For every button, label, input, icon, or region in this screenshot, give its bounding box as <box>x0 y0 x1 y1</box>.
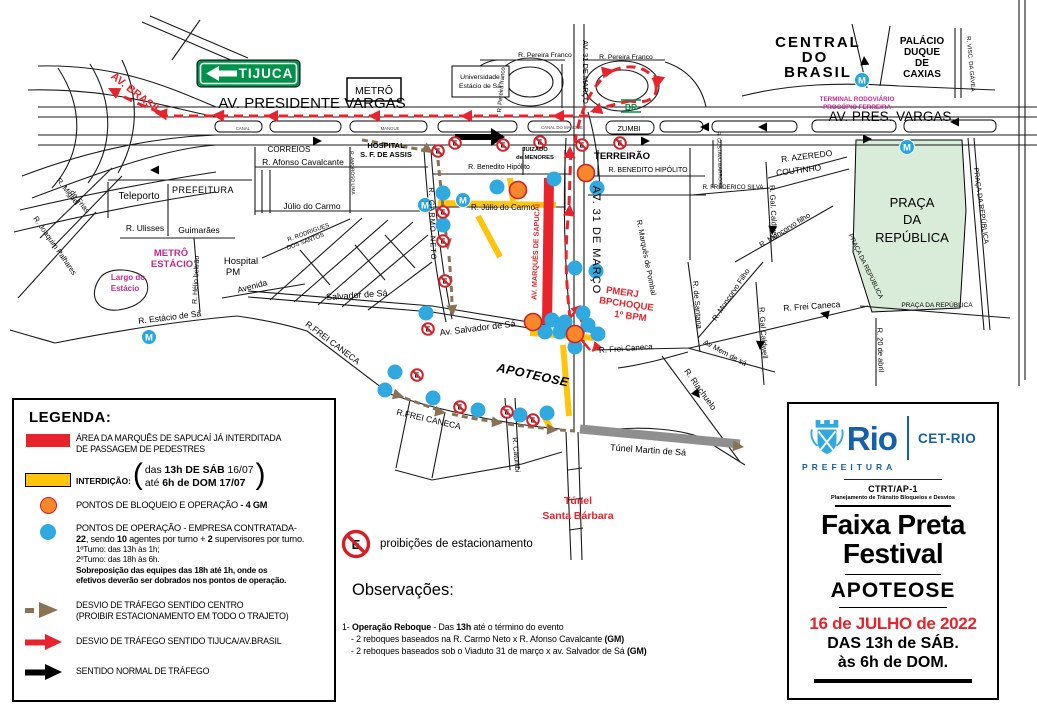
arrowhead <box>313 137 322 146</box>
red-area-swatch <box>26 434 70 447</box>
map-label-av-31-marco-mid: AV. 31 DE MARÇO <box>590 186 602 295</box>
panel-rule-4 <box>839 607 947 608</box>
map-label-tunel-santa-barbara-1: Túnel <box>564 495 592 507</box>
map-label-praca-1: PRAÇA <box>890 195 935 210</box>
universidade-label-1: Universidade <box>460 74 500 81</box>
no-parking-icon: E <box>501 406 513 418</box>
open-paren: ( <box>133 461 143 488</box>
panel-rule-2 <box>835 505 951 507</box>
no-parking-icon: E <box>411 369 423 381</box>
info-panel: Rio CET-RIO PREFEITURA CTRT/AP-1 Planeja… <box>787 402 999 700</box>
no-parking-icon: E <box>437 235 449 247</box>
no-parking-icon: E <box>432 145 444 157</box>
map-label-av-presidente-vargas: AV. PRESIDENTE VARGAS <box>218 95 405 112</box>
cet-rio-label: CET-RIO <box>918 431 976 446</box>
map-label-central-do-brasil-3: BRASIL <box>784 64 852 81</box>
operation-point <box>513 408 528 423</box>
map-label-palacio-4: CAXIAS <box>903 69 941 80</box>
map-label-apoteose: APOTEOSE <box>494 360 570 389</box>
map-label-gal-caldwell-2: R. Gal Caldwell <box>757 307 770 360</box>
map-label-catumbi: R. Catumbi <box>510 437 520 473</box>
map-label-pereira-franco-1: R. Pereira Franco <box>518 52 572 59</box>
operation-point <box>490 180 505 195</box>
arrowhead <box>641 137 650 146</box>
dept-sub-label: Planejamento de Trânsito Bloqueios e Des… <box>789 495 997 501</box>
metro-icon: M <box>855 73 870 88</box>
interdicao-times: das 13h DE SÁB 16/07 até 6h de DOM 17/07 <box>145 464 254 490</box>
brown-arrow-icon <box>22 601 74 619</box>
svg-text:M: M <box>145 332 153 343</box>
no-parking-icon: E <box>437 206 449 218</box>
no-parking-icon: E <box>614 137 626 149</box>
operation-point <box>426 391 441 406</box>
tijuca-sign: TIJUCA <box>197 60 300 87</box>
map-label-tunel-martin: Túnel Martin de Sá <box>610 442 687 457</box>
no-parking-icon: E <box>422 323 434 335</box>
observations-items: 1- Operação Reboque - Das 13h até o térm… <box>342 622 785 658</box>
map-label-benedito-hipolito-e: R. BENEDITO HIPÓLITO <box>608 165 688 174</box>
legend-box: LEGENDA: ÁREA DA MARQUÊS DE SAPUCAÍ JÁ I… <box>12 398 336 702</box>
legend-row-desvio-tijuca: DESVIO DE TRÁFEGO SENTIDO TIJUCA/AV.BRAS… <box>20 632 328 651</box>
map-label-praca-street-right: PRAÇA DA REPÚBLICA <box>972 167 992 244</box>
legend-row-operacao: PONTOS DE OPERAÇÃO - EMPRESA CONTRATADA-… <box>20 523 328 586</box>
event-date: 16 de JULHO de 2022 <box>789 614 997 634</box>
map-label-carmo-neto: R. CARMO NETO <box>427 187 439 261</box>
operacao-text: PONTOS DE OPERAÇÃO - EMPRESA CONTRATADA-… <box>76 523 304 586</box>
arrowhead <box>108 88 121 99</box>
no-parking-icon: E <box>576 139 588 151</box>
interdicao-label: INTERDIÇÃO: <box>76 476 131 486</box>
event-title-1: Faixa Preta <box>789 510 997 539</box>
br-logo-label: BR <box>625 102 637 112</box>
traffic-map-page: { "map": { "signs": { "tijuca": "TIJUCA"… <box>0 0 1037 713</box>
map-label-pereira-franco-2: R. Pereira Franco <box>599 54 653 61</box>
black-arrow-icon <box>22 663 74 681</box>
map-label-largo-estacio-1: Largo do <box>111 273 145 282</box>
map-label-teleporto: Teleporto <box>118 191 160 202</box>
no-parking-icon: E <box>449 137 461 149</box>
legend-row-closed-area: ÁREA DA MARQUÊS DE SAPUCAÍ JÁ INTERDITAD… <box>20 433 328 454</box>
no-parking-icon: E <box>527 414 539 426</box>
operation-point <box>419 306 434 321</box>
metro-icon: M <box>900 140 915 155</box>
arrowhead <box>492 416 504 427</box>
universidade-label-2: Estácio de Sá <box>459 83 501 90</box>
map-label-hospital-pm-1: Hospital <box>224 256 258 267</box>
map-label-zumbi: ZUMBI <box>617 124 640 133</box>
map-label-frei-caneca-w: R.FREI CANECA <box>304 319 363 367</box>
sapucai-closed-area <box>547 178 549 324</box>
map-label-tunel-santa-barbara-2: Santa Bárbara <box>542 510 613 522</box>
svg-text:M: M <box>858 75 866 86</box>
arrowhead <box>150 166 159 175</box>
no-parking-icon: E <box>439 275 451 287</box>
arrowhead <box>820 311 830 320</box>
arrowhead <box>460 110 472 122</box>
desvio-tijuca-text: DESVIO DE TRÁFEGO SENTIDO TIJUCA/AV.BRAS… <box>76 636 281 647</box>
no-parking-icon: E <box>340 528 372 560</box>
map-label-canal-1: CANAL <box>236 126 251 131</box>
yellow-swatch <box>25 473 71 487</box>
prefeitura-label: PREFEITURA <box>802 462 997 472</box>
blockade-point <box>567 326 584 343</box>
map-label-hospital-pm-2: PM <box>226 267 240 278</box>
no-parking-label: proibições de estacionamento <box>380 538 533 550</box>
map-label-frei-caneca-pmerj: R. Frei Caneca <box>599 342 654 355</box>
arrowhead <box>552 110 564 122</box>
blockade-point <box>578 165 595 182</box>
tijuca-sign-label: TIJUCA <box>239 66 294 81</box>
event-time-2: às 6h de DOM. <box>789 653 997 672</box>
map-label-terreirao: TERREIRÃO <box>594 151 650 162</box>
venue-label: APOTEOSE <box>789 579 997 603</box>
closed-area-text: ÁREA DA MARQUÊS DE SAPUCAÍ JÁ INTERDITAD… <box>76 433 281 454</box>
blockade-point <box>510 182 527 199</box>
normal-flow-text: SENTIDO NORMAL DE TRÁFEGO <box>76 666 209 677</box>
svg-text:M: M <box>459 195 467 206</box>
panel-bottom-bar <box>814 679 972 683</box>
operation-point <box>568 261 583 276</box>
map-label-hospital-assis-1: HOSPITAL <box>367 141 405 150</box>
no-parking-icon: E <box>497 139 509 151</box>
tunel-martin-band <box>580 429 740 444</box>
map-label-metro-estacio-2: ESTÁCIO <box>151 259 193 270</box>
map-label-praca-street-bottom: PRAÇA DA REPÚBLICA <box>901 300 973 309</box>
legend-row-desvio-centro: DESVIO DE TRÁFEGO SENTIDO CENTRO(PROIBIR… <box>20 600 328 621</box>
map-label-praca-2: DA <box>903 212 921 227</box>
close-paren: ) <box>256 461 266 488</box>
map-label-largo-estacio-2: Estácio <box>111 284 140 293</box>
legend-row-normal: SENTIDO NORMAL DE TRÁFEGO <box>20 662 328 681</box>
map-label-prefeitura-block: PREFEITURA <box>172 185 234 195</box>
event-title-2: Festival <box>789 539 997 568</box>
map-label-av-pres-vargas-right: AV. PRES. VARGAS <box>829 109 952 124</box>
panel-rule-3 <box>845 574 941 575</box>
rio-wordmark: Rio <box>847 422 897 455</box>
observations-block: E proibições de estacionamento Observaçõ… <box>340 528 785 658</box>
map-label-sapucai: AV. MARQUÊS DE SAPUCAÍ <box>529 203 541 300</box>
map-label-juizado-2: de MENORES <box>516 155 554 161</box>
map-label-av-31-marco-top: AV. 31 DE MARÇO <box>581 40 590 104</box>
map-label-benedito-hipolito-w: R. Benedito Hipólito <box>468 164 530 171</box>
map-label-terminal-1: TERMINAL RODOVIÁRIO <box>820 94 895 103</box>
map-label-moncorvo-2: R. Moncorvo Filho <box>710 267 751 322</box>
map-label-visc-gavea: R. VISC. DA GÁVEA <box>965 36 977 92</box>
panel-rule-1 <box>844 479 942 480</box>
map-label-santana: R. de Santana <box>691 281 704 330</box>
arrowhead <box>860 56 869 65</box>
arrowhead <box>421 143 433 154</box>
map-label-helio-beltrao: R. Hélio beltrão <box>192 256 202 305</box>
map-label-correios: CORREIOS <box>268 145 311 154</box>
operation-point <box>591 327 606 342</box>
map-label-marques-pombal: R. Marquês de Pombal <box>635 219 659 296</box>
map-label-terminal-2: PROCÓPIO FERREIRA <box>823 102 891 111</box>
red-arrow-icon <box>22 633 74 651</box>
logo-divider <box>907 416 909 460</box>
svg-text:M: M <box>903 142 911 153</box>
map-label-julio-carmo-e: R. Júlio do Carmo <box>471 203 536 212</box>
map-label-metro-estacio-1: METRÔ <box>154 247 188 259</box>
rio-prefeitura-logo: Rio CET-RIO <box>789 416 997 460</box>
legend-row-bloqueio: PONTOS DE BLOQUEIO E OPERAÇÃO - 4 GM <box>20 496 328 514</box>
map-label-afonso-cavalcante: R. Afonso Cavalcante <box>262 157 344 167</box>
map-label-mem-de-sa: Av Mem de sá <box>702 338 749 369</box>
map-label-ulisses: R. Ulisses <box>126 223 164 233</box>
observations-title: Observações: <box>352 581 785 600</box>
map-label-moncorvo-1: R. Moncorvo filho <box>758 211 812 250</box>
operation-point <box>553 325 568 340</box>
map-label-juizado-1: JUIZADO <box>522 147 548 153</box>
map-label-palacio-3: DE <box>915 58 929 69</box>
operation-point <box>378 383 393 398</box>
map-label-frederico-silva: R. FREDERICO SILVA <box>703 185 764 191</box>
no-parking-legend: E proibições de estacionamento <box>340 528 785 560</box>
operation-point <box>540 406 555 421</box>
legend-row-interdicao: INTERDIÇÃO: ( das 13h DE SÁB 16/07 até 6… <box>20 463 328 490</box>
map-label-gustavo-barroso: R. GUSTAVO BARROSO <box>715 132 723 189</box>
map-label-coutinho: COUTINHO <box>776 162 823 177</box>
operation-point <box>436 186 451 201</box>
blockade-point <box>525 314 542 331</box>
map-label-riachuelo: R. Riachuelo <box>682 367 719 412</box>
map-label-palacio-1: PALÁCIO <box>900 34 944 47</box>
dept-label: CTRT/AP-1 <box>789 484 997 494</box>
map-label-frei-caneca-e: R. Frei Caneca <box>783 299 841 313</box>
map-label-hospital-assis-2: S. F. DE ASSIS <box>360 150 412 159</box>
event-time-1: DAS 13h de SÁB. <box>789 634 997 653</box>
orange-dot-swatch <box>40 497 57 514</box>
rio-crest-icon <box>810 418 844 458</box>
legend-title: LEGENDA: <box>29 409 334 426</box>
map-label-palacio-2: DUQUE <box>904 47 940 58</box>
operation-point <box>471 403 486 418</box>
metro-icon: M <box>456 193 471 208</box>
no-parking-icon: E <box>454 401 466 413</box>
map-label-guimaraes: Guimarães <box>178 225 220 235</box>
blue-dot-swatch <box>40 524 56 540</box>
map-label-r-20-abril: R. 20 de abril <box>875 327 886 372</box>
desvio-centro-text: DESVIO DE TRÁFEGO SENTIDO CENTRO(PROIBIR… <box>76 600 289 621</box>
map-label-amoroso-lima: R. AMOROSO LIMA <box>348 151 356 195</box>
map-label-canal-2: CANAL DO MANGUE <box>541 125 583 130</box>
map-label-azeredo: R. AZEREDO <box>780 148 833 164</box>
bloqueio-text: PONTOS DE BLOQUEIO E OPERAÇÃO - 4 GM <box>76 500 267 511</box>
map-label-mangue-1: MANGUE <box>381 126 400 131</box>
map-label-julio-carmo-w: Júlio do Carmo <box>283 201 340 211</box>
map-label-av-salvador-sa: Av. Salvador de Sá <box>439 318 516 337</box>
operation-point <box>547 172 562 187</box>
br-gas-station-icon: BR <box>621 100 641 112</box>
metro-icon: M <box>142 330 157 345</box>
operation-point <box>388 365 403 380</box>
map-label-praca-3: REPÚBLICA <box>875 230 949 245</box>
